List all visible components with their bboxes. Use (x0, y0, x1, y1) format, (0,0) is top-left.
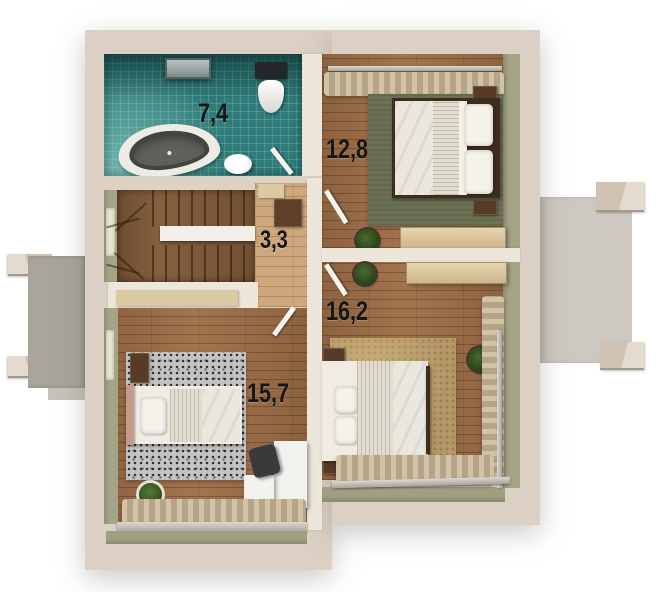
left-balcony-slab (28, 256, 86, 388)
bed-12-duvet (395, 101, 433, 195)
bed-15-blanket (170, 389, 202, 442)
stair-wall-niche (106, 208, 115, 256)
bed-15-headboard (126, 385, 134, 445)
wall-bathroom-right (302, 54, 322, 178)
stairs-lower-flight (152, 245, 255, 282)
bed-16-frame-edge (426, 366, 430, 454)
room-label-bedroom-12: 12,8 (326, 134, 368, 165)
toilet-tank (255, 62, 287, 79)
stairs-upper-flight (152, 190, 255, 227)
room-label-bathroom: 7,4 (198, 98, 228, 129)
bed-12-blanket (433, 101, 459, 195)
bed-16-blanket (357, 361, 393, 463)
nightstand (473, 200, 497, 215)
bedroom-16-bottom-wall (322, 487, 505, 502)
bedroom-15-wall-niche (106, 330, 114, 380)
desk-16 (406, 262, 507, 284)
left-balcony-step (48, 388, 86, 400)
hall-dresser (274, 199, 302, 227)
pillow (140, 397, 166, 434)
wardrobe-top (116, 290, 238, 306)
sink (224, 154, 252, 174)
potted-plant (354, 263, 376, 285)
wall-bedrooms-right-horizontal (322, 248, 520, 262)
ceiling-light (165, 58, 211, 79)
desk-12 (400, 227, 506, 250)
stair-railing (160, 226, 255, 241)
bedroom-15-bottom-wall (106, 531, 307, 544)
bedroom-16-right-wall (503, 262, 520, 488)
room-label-hall: 3,3 (260, 226, 288, 255)
bed-15-duvet (202, 389, 240, 442)
corner-desk (274, 441, 307, 508)
hall-cabinet (258, 184, 284, 198)
room-label-bedroom-15: 15,7 (247, 378, 289, 409)
bed-16-duvet (393, 361, 427, 457)
floor-plan-render: 7,4 3,3 12,8 (0, 0, 666, 592)
pillow (464, 104, 493, 146)
pillow (334, 386, 357, 413)
right-balcony-beam-bottom (600, 342, 644, 370)
pillow (334, 416, 357, 444)
right-balcony-slab (540, 197, 632, 363)
nightstand (130, 353, 149, 383)
bedroom-12-right-wall (503, 54, 520, 248)
pillow (464, 150, 493, 194)
curtain-rail-12 (328, 66, 502, 71)
window-sill-16-right (497, 330, 502, 488)
room-label-bedroom-16: 16,2 (326, 296, 368, 327)
wall-central-vertical (307, 178, 322, 530)
right-balcony-beam-top (596, 182, 644, 212)
